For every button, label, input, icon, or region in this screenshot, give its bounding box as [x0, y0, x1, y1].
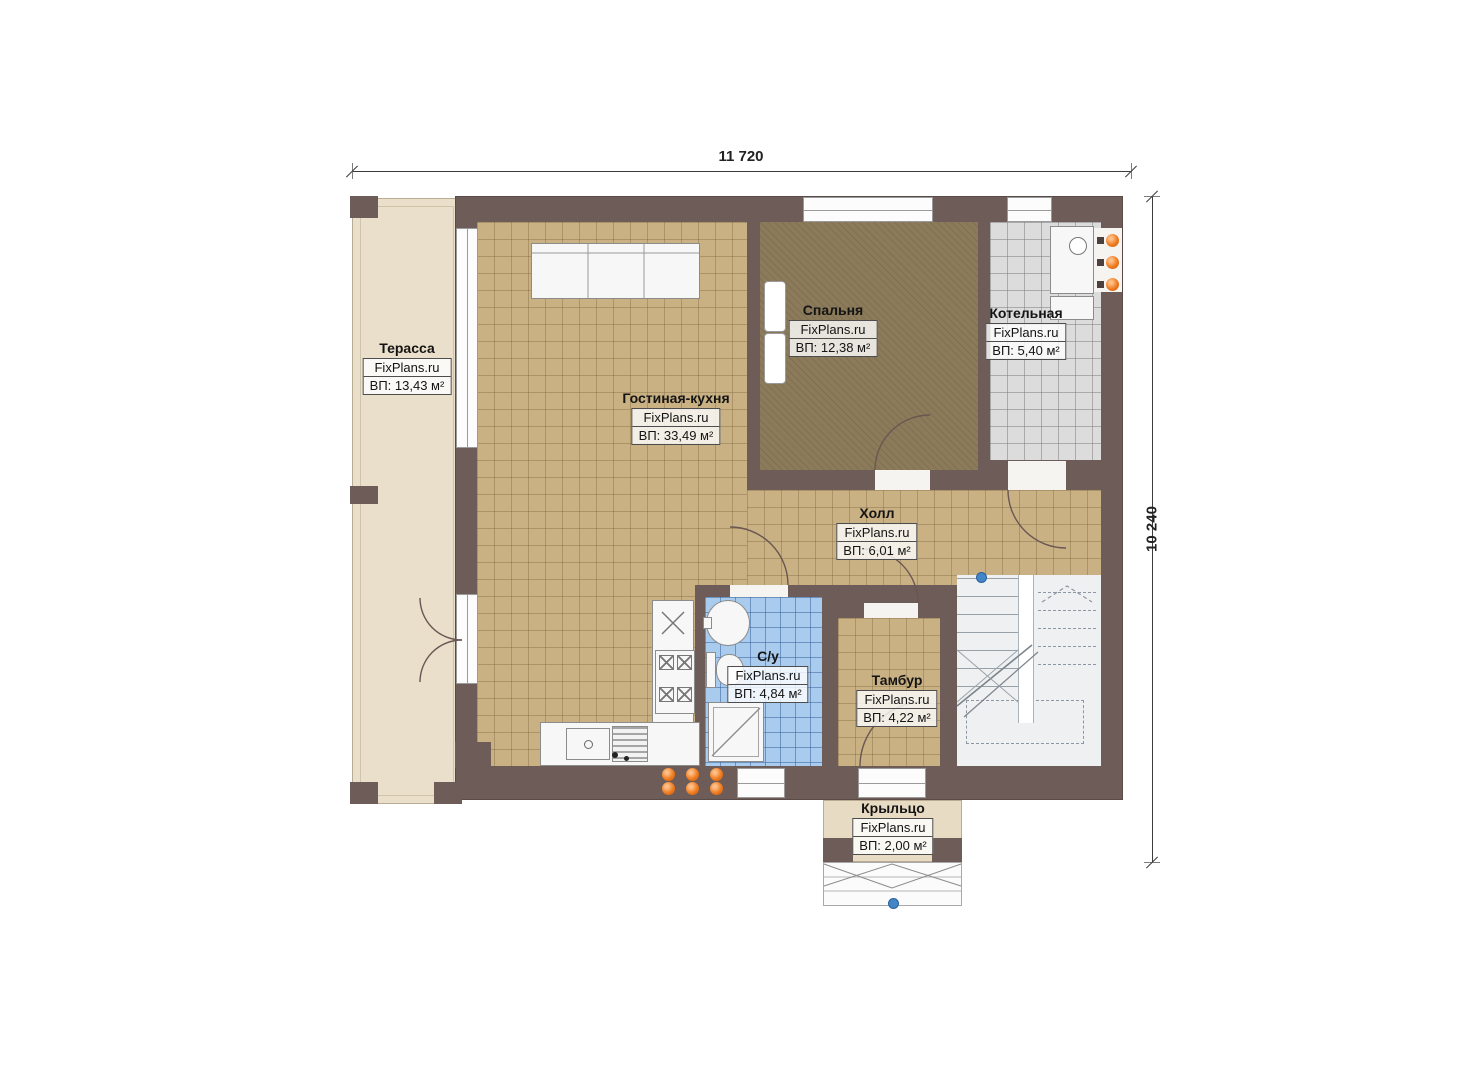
- bedroom-window: [803, 197, 933, 222]
- room-name: Гостиная-кухня: [622, 390, 729, 406]
- wall-tambour-stairs: [940, 603, 957, 766]
- room-label-porch: Крыльцо FixPlans.ru ВП: 2,00 м²: [852, 800, 933, 855]
- burner-icon: [659, 655, 674, 670]
- room-label-bedroom: Спальня FixPlans.ru ВП: 12,38 м²: [789, 302, 878, 357]
- room-label-living-kitchen: Гостиная-кухня FixPlans.ru ВП: 33,49 м²: [622, 390, 729, 445]
- room-name: Котельная: [985, 305, 1066, 321]
- faucet-icon: [612, 752, 618, 758]
- stair-tread-dashed: [1038, 628, 1096, 629]
- boiler-gauge-icon: [1069, 237, 1087, 255]
- stair-stringer: [1018, 575, 1034, 723]
- heating-connection-icon: [1106, 278, 1119, 291]
- room-label-terrace: Терасса FixPlans.ru ВП: 13,43 м²: [363, 340, 452, 395]
- washbasin-tap-icon: [703, 617, 712, 629]
- room-info-box: FixPlans.ru ВП: 33,49 м²: [632, 408, 721, 445]
- heating-connection-icon: [662, 782, 675, 795]
- pipe-connector-icon: [1097, 259, 1104, 266]
- faucet-icon: [624, 756, 629, 761]
- room-area: ВП: 13,43 м²: [364, 377, 451, 394]
- shower-tray: [708, 702, 764, 762]
- room-name: Крыльцо: [852, 800, 933, 816]
- watermark: FixPlans.ru: [790, 321, 877, 339]
- room-area: ВП: 6,01 м²: [837, 542, 916, 559]
- watermark: FixPlans.ru: [364, 359, 451, 377]
- room-info-box: FixPlans.ru ВП: 5,40 м²: [985, 323, 1066, 360]
- terrace-door-opening: [456, 594, 478, 684]
- watermark: FixPlans.ru: [853, 819, 932, 837]
- burner-icon: [677, 655, 692, 670]
- terrace-post: [350, 486, 378, 504]
- dimension-line-top: [352, 171, 1131, 172]
- boiler-door-opening: [1008, 461, 1066, 490]
- pipe-connector-icon: [1097, 237, 1104, 244]
- watermark: FixPlans.ru: [857, 691, 936, 709]
- room-name: Тамбур: [856, 672, 937, 688]
- room-name: С/у: [727, 648, 808, 664]
- heating-connection-icon: [710, 768, 723, 781]
- bed-pillow: [764, 333, 786, 384]
- watermark: FixPlans.ru: [837, 524, 916, 542]
- room-label-tambour: Тамбур FixPlans.ru ВП: 4,22 м²: [856, 672, 937, 727]
- watermark: FixPlans.ru: [986, 324, 1065, 342]
- room-name: Терасса: [363, 340, 452, 356]
- terrace-post: [350, 196, 378, 218]
- watermark: FixPlans.ru: [633, 409, 720, 427]
- terrace-post: [350, 782, 378, 804]
- room-label-bathroom: С/у FixPlans.ru ВП: 4,84 м²: [727, 648, 808, 703]
- hall-floor: [747, 490, 1101, 585]
- living-window: [456, 228, 478, 448]
- burner-icon: [659, 687, 674, 702]
- bathroom-door-opening: [730, 585, 788, 597]
- room-area: ВП: 33,49 м²: [633, 427, 720, 444]
- shower-tray-inner: [713, 707, 759, 757]
- stair-tread-dashed: [1038, 646, 1096, 647]
- heating-connection-icon: [662, 768, 675, 781]
- dimension-label-top: 11 720: [718, 148, 763, 165]
- heating-connection-icon: [1106, 256, 1119, 269]
- room-info-box: FixPlans.ru ВП: 13,43 м²: [363, 358, 452, 395]
- heating-connection-icon: [686, 768, 699, 781]
- bathroom-window: [737, 768, 785, 798]
- stair-tread-dashed: [1038, 664, 1096, 665]
- watermark: FixPlans.ru: [728, 667, 807, 685]
- bed-pillow: [764, 281, 786, 332]
- level-marker-icon: [976, 572, 987, 583]
- sofa: [531, 243, 700, 299]
- terrace-post: [434, 782, 462, 804]
- wall-corner-step: [455, 742, 491, 768]
- level-marker-icon: [888, 898, 899, 909]
- porch-post: [932, 838, 962, 862]
- room-info-box: FixPlans.ru ВП: 6,01 м²: [836, 523, 917, 560]
- dimension-label-right: 10 240: [1144, 506, 1161, 552]
- tambour-door-opening: [864, 603, 918, 618]
- room-area: ВП: 4,22 м²: [857, 709, 936, 726]
- boiler-window: [1007, 197, 1052, 222]
- bedroom-door-opening: [875, 470, 930, 490]
- wall-living-bedroom: [747, 222, 760, 490]
- room-area: ВП: 12,38 м²: [790, 339, 877, 356]
- room-area: ВП: 5,40 м²: [986, 342, 1065, 359]
- toilet-tank: [706, 652, 716, 688]
- pipe-connector-icon: [1097, 281, 1104, 288]
- sink-drain-icon: [584, 740, 593, 749]
- room-label-hall: Холл FixPlans.ru ВП: 6,01 м²: [836, 505, 917, 560]
- wall-bathroom-tambour: [822, 585, 838, 766]
- heating-connection-icon: [686, 782, 699, 795]
- room-info-box: FixPlans.ru ВП: 2,00 м²: [852, 818, 933, 855]
- room-info-box: FixPlans.ru ВП: 4,22 м²: [856, 690, 937, 727]
- stair-flight-solid: [957, 578, 1019, 704]
- boiler-unit: [1050, 226, 1094, 294]
- porch-post: [823, 838, 853, 862]
- room-name: Холл: [836, 505, 917, 521]
- heating-connection-icon: [1106, 234, 1119, 247]
- room-info-box: FixPlans.ru ВП: 12,38 м²: [789, 320, 878, 357]
- room-info-box: FixPlans.ru ВП: 4,84 м²: [727, 666, 808, 703]
- room-label-boiler: Котельная FixPlans.ru ВП: 5,40 м²: [985, 305, 1066, 360]
- heating-connection-icon: [710, 782, 723, 795]
- room-name: Спальня: [789, 302, 878, 318]
- room-area: ВП: 4,84 м²: [728, 685, 807, 702]
- floor-plan-canvas: 11 720 10 240: [0, 0, 1474, 1080]
- front-door-opening: [858, 768, 926, 798]
- stair-tread-dashed: [1038, 592, 1096, 593]
- washbasin: [706, 600, 750, 646]
- burner-icon: [677, 687, 692, 702]
- stair-tread-dashed: [1038, 610, 1096, 611]
- room-area: ВП: 2,00 м²: [853, 837, 932, 854]
